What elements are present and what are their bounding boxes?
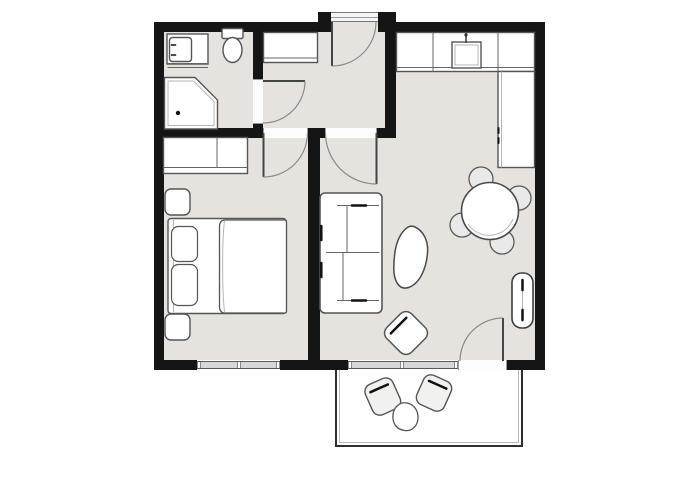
shower-drain xyxy=(176,111,180,115)
entry-cabinet xyxy=(264,33,318,63)
duvet xyxy=(220,220,287,313)
wardrobe xyxy=(164,138,248,174)
side-table xyxy=(393,403,418,431)
tall-cabinet xyxy=(498,72,535,168)
furniture-layer xyxy=(0,0,700,500)
double-bed xyxy=(168,219,287,314)
radiator xyxy=(512,273,533,328)
bathroom-door xyxy=(263,81,305,123)
pillow xyxy=(172,265,198,306)
corner-shower xyxy=(165,78,218,130)
sofa xyxy=(320,193,382,313)
faucet xyxy=(464,33,467,36)
outdoor-chair xyxy=(414,372,454,413)
bedroom-door xyxy=(264,133,308,177)
balcony-door xyxy=(460,318,503,361)
living-room-door xyxy=(326,133,377,184)
floor-plan-canvas xyxy=(0,0,700,500)
vanity-sink xyxy=(167,34,208,68)
dining-table xyxy=(462,183,519,240)
nightstand xyxy=(165,314,190,340)
nightstand xyxy=(165,189,190,215)
armchair xyxy=(381,308,430,357)
entrance-door xyxy=(332,22,376,66)
toilet xyxy=(222,29,243,63)
pillow xyxy=(172,227,198,262)
coffee-table xyxy=(394,226,428,288)
